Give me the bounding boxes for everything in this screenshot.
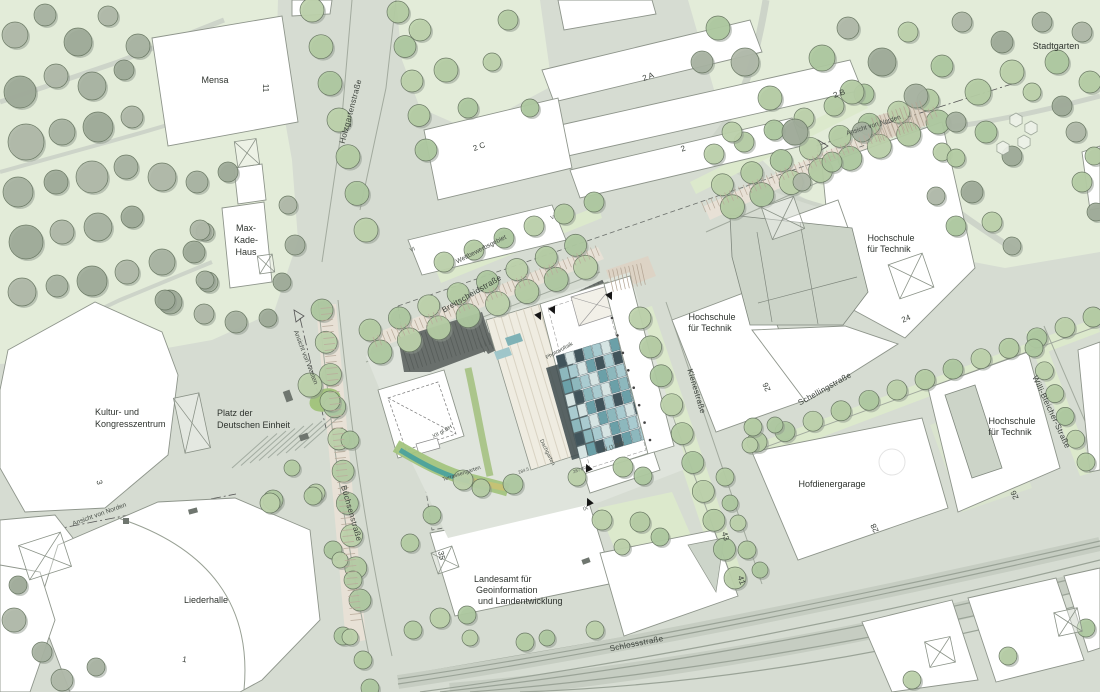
label-hft-north-1: Hochschule (867, 233, 914, 243)
label-hft-south-2: für Technik (988, 427, 1032, 437)
label-landesamt-3: und Landentwicklung (478, 596, 563, 606)
label-max-kade-2: Kade- (234, 235, 258, 245)
label-mensa: Mensa (201, 75, 228, 85)
label-max-kade-3: Haus (235, 247, 257, 257)
x-box-symbol (1054, 608, 1082, 636)
label-max-kade-1: Max- (236, 223, 256, 233)
number-mensa-11: 11 (261, 84, 270, 93)
label-hft-south-1: Hochschule (988, 416, 1035, 426)
street-furniture (123, 518, 129, 524)
label-kultur-1: Kultur- und (95, 407, 139, 417)
label-hofdienergarage: Hofdienergarage (798, 479, 865, 489)
hexagon-symbol (1018, 135, 1030, 149)
label-platz-1: Platz der (217, 408, 253, 418)
hexagon-symbol (1025, 121, 1037, 135)
label-stadtgarten: Stadtgarten (1033, 41, 1080, 51)
label-hft-west-1: Hochschule (688, 312, 735, 322)
hexagon-symbol (1010, 113, 1022, 127)
label-landesamt-2: Geoinformation (476, 585, 538, 595)
label-platz-2: Deutschen Einheit (217, 420, 291, 430)
x-box-symbol (925, 637, 956, 668)
label-hft-west-2: für Technik (688, 323, 732, 333)
label-liederhalle: Liederhalle (184, 595, 228, 605)
building-max-kade-haus (222, 202, 272, 288)
label-hft-north-2: für Technik (867, 244, 911, 254)
x-box-symbol (257, 254, 274, 274)
x-box-symbol (234, 139, 259, 168)
label-kultur-2: Kongresszentrum (95, 419, 166, 429)
label-landesamt-1: Landesamt für (474, 574, 532, 584)
building-hft-existing (730, 215, 868, 325)
hexagon-symbol (997, 141, 1009, 155)
site-plan-svg: Mensa Max- Kade- Haus Kultur- und Kongre… (0, 0, 1100, 692)
